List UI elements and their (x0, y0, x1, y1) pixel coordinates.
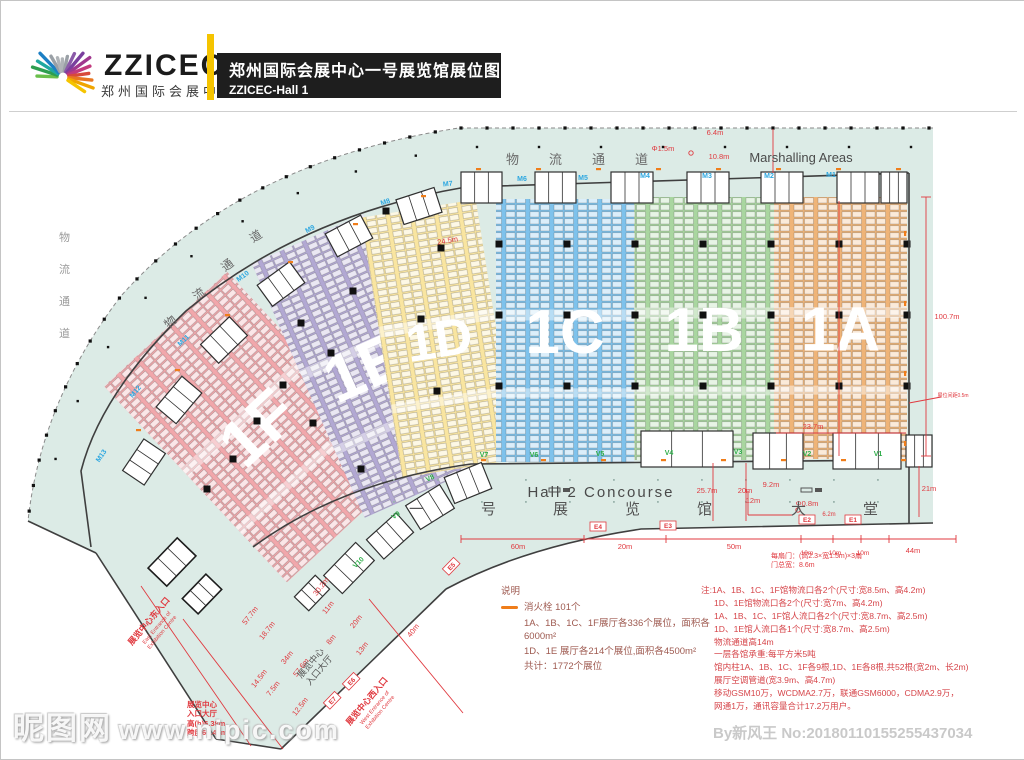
gate-label-v: V1 (874, 451, 883, 458)
svg-text:E1: E1 (849, 517, 857, 524)
note-line: 馆内柱1A、1B、1C、1F各9根,1D、1E各8根,共52根(宽2m、长2m) (701, 661, 1016, 674)
gate-label-v: V4 (665, 450, 674, 457)
dimension-label: 6.2m (822, 512, 835, 518)
title-block: 郑州国际会展中心一号展览馆展位图 ZZICEC-Hall 1 (217, 53, 501, 98)
gate-label-v: V7 (480, 452, 489, 459)
lobby-label: 览 (625, 501, 640, 518)
note-line: 物流通道高14m (701, 636, 1016, 649)
dimension-label: 44m (906, 546, 921, 555)
lobby-label: 大 (791, 501, 806, 518)
service-rooms (833, 433, 901, 469)
service-rooms (906, 435, 932, 467)
dimension-label: 50m (727, 542, 742, 551)
note-line: 1D、1E馆物流口各2个(尺寸:宽7m、高4.2m) (701, 597, 1016, 610)
dimension-label: 20m (738, 486, 753, 495)
lobby-label: 号 (481, 501, 496, 518)
gate-label-m: M3 (702, 173, 712, 180)
corridor-text: 物 (59, 230, 70, 244)
gate-label-v: V6 (530, 452, 539, 459)
zone-1b: 1B (634, 197, 774, 460)
dimension-label: 23.7m (803, 422, 824, 431)
corridor-text: 流 (549, 152, 562, 167)
corridor-text: 流 (59, 262, 70, 276)
svg-text:E4: E4 (594, 524, 602, 531)
legend: 说明 消火栓 101个 1A、1B、1C、1F展厅各336个展位，面积各6000… (501, 585, 716, 676)
lobby-label: 一 (409, 501, 424, 518)
legend-hydrant-text: 消火栓 101个 (524, 601, 581, 614)
header-divider (9, 111, 1017, 112)
note-line: 1D、1E馆人流口各1个(尺寸:宽8.7m、高2.5m) (701, 623, 1016, 636)
zone-label-1a: 1A (801, 295, 880, 364)
gate-label-v: V5 (596, 451, 605, 458)
corridor-text: 通 (592, 152, 605, 167)
gate-label-v: V2 (803, 451, 812, 458)
legend-title: 说明 (501, 585, 716, 598)
svg-text:E3: E3 (664, 523, 672, 530)
concourse-label: Hall 2 Concourse (527, 484, 674, 501)
note-line: 注:1A、1B、1C、1F馆物流口各2个(尺寸:宽8.5m、高4.2m) (701, 584, 1016, 597)
page-title: 郑州国际会展中心一号展览馆展位图 (229, 57, 501, 81)
logo-starburst-icon (23, 35, 101, 97)
dimension-label: 6.4m (707, 128, 724, 137)
dimension-label: 60m (511, 542, 526, 551)
lobby-label: 堂 (863, 501, 878, 518)
gate-label-m: M5 (578, 175, 588, 182)
poster-page: 1F1E1D1C1B1A6.4mΦ1.5m10.8m100.7m展位间距0.5m… (0, 0, 1024, 760)
dimension-label: 12m (746, 496, 761, 505)
note-line: 展厅空调管道(宽3.9m、高4.7m) (701, 674, 1016, 687)
zone-1c: 1C (496, 199, 634, 462)
logo-ray (37, 76, 57, 77)
notes-block: 注:1A、1B、1C、1F馆物流口各2个(尺寸:宽8.5m、高4.2m) 1D、… (701, 584, 1016, 713)
service-rooms (535, 172, 576, 203)
corridor-text: 通 (59, 295, 70, 308)
legend-item: 共计：1772个展位 (501, 660, 716, 673)
note-line: 一层各馆承重:每平方米5吨 (701, 648, 1016, 661)
gate-label-e: E4 (590, 522, 606, 531)
fire-hydrant-icon (501, 606, 518, 609)
gate-label-e: E3 (660, 521, 676, 530)
gate-label-e: E1 (845, 515, 861, 524)
lobby-label: 展 (553, 501, 568, 518)
gate-label-v: V3 (734, 449, 743, 456)
gate-label-m: M6 (517, 176, 527, 183)
dimension-label: 25.7m (697, 486, 718, 495)
service-rooms (461, 172, 502, 203)
note-line: 移动GSM10万，WCDMA2.7万，联通GSM6000，CDMA2.9万， (701, 687, 1016, 700)
dimension-label: 20m (618, 542, 633, 551)
zone-label-1c: 1C (525, 298, 604, 367)
marshalling-label: Marshalling Areas (749, 150, 853, 165)
gate-label-m: M4 (640, 173, 650, 180)
gate-label-m: M1 (826, 172, 836, 179)
service-rooms (881, 172, 907, 203)
yellow-accent-bar (207, 34, 214, 100)
zone-1a: 1A (774, 197, 907, 459)
gate-label-m: M2 (764, 173, 774, 180)
door-size-note: 每扇门：(高2.3×宽1.5m)×3扇 门总宽：8.6m (771, 552, 862, 570)
dimension-label: 100.7m (934, 312, 959, 321)
watermark-id: By新风王 No:20180110155255437034 (713, 722, 972, 743)
note-line: 1A、1B、1C、1F馆人流口各2个(尺寸:宽8.7m、高2.5m) (701, 610, 1016, 623)
legend-item: 1D、1E 展厅各214个展位,面积各4500m² (501, 645, 716, 658)
note-line: 网通1万，通讯容量合计17.2万用户。 (701, 700, 1016, 713)
service-rooms (837, 172, 879, 203)
svg-text:E2: E2 (803, 517, 811, 524)
zone-label-1d: 1D (402, 306, 477, 374)
gate-label-m: M7 (443, 181, 454, 189)
page-subtitle: ZZICEC-Hall 1 (229, 83, 501, 97)
header: ZZICEC 郑州国际会展中心 郑州国际会展中心一号展览馆展位图 ZZICEC-… (1, 1, 1024, 113)
dimension-label: 10.8m (709, 152, 730, 161)
corridor-text: 道 (635, 152, 648, 167)
corridor-text: 物 (506, 152, 519, 167)
corridor-text: 道 (59, 326, 70, 340)
legend-item: 1A、1B、1C、1F展厅各336个展位，面积各6000m² (501, 617, 716, 644)
zone-label-1b: 1B (664, 296, 743, 365)
service-rooms (753, 433, 803, 469)
watermark-nipic: 昵图网 www.nipic.com (13, 703, 340, 748)
service-rooms (641, 431, 733, 467)
lobby-label: 馆 (697, 501, 712, 518)
dimension-label: 展位间距0.5m (937, 392, 968, 399)
dimension-label: 9.2m (763, 480, 780, 489)
dimension-label: Φ1.5m (652, 144, 675, 153)
dimension-label: 21m (922, 484, 937, 493)
